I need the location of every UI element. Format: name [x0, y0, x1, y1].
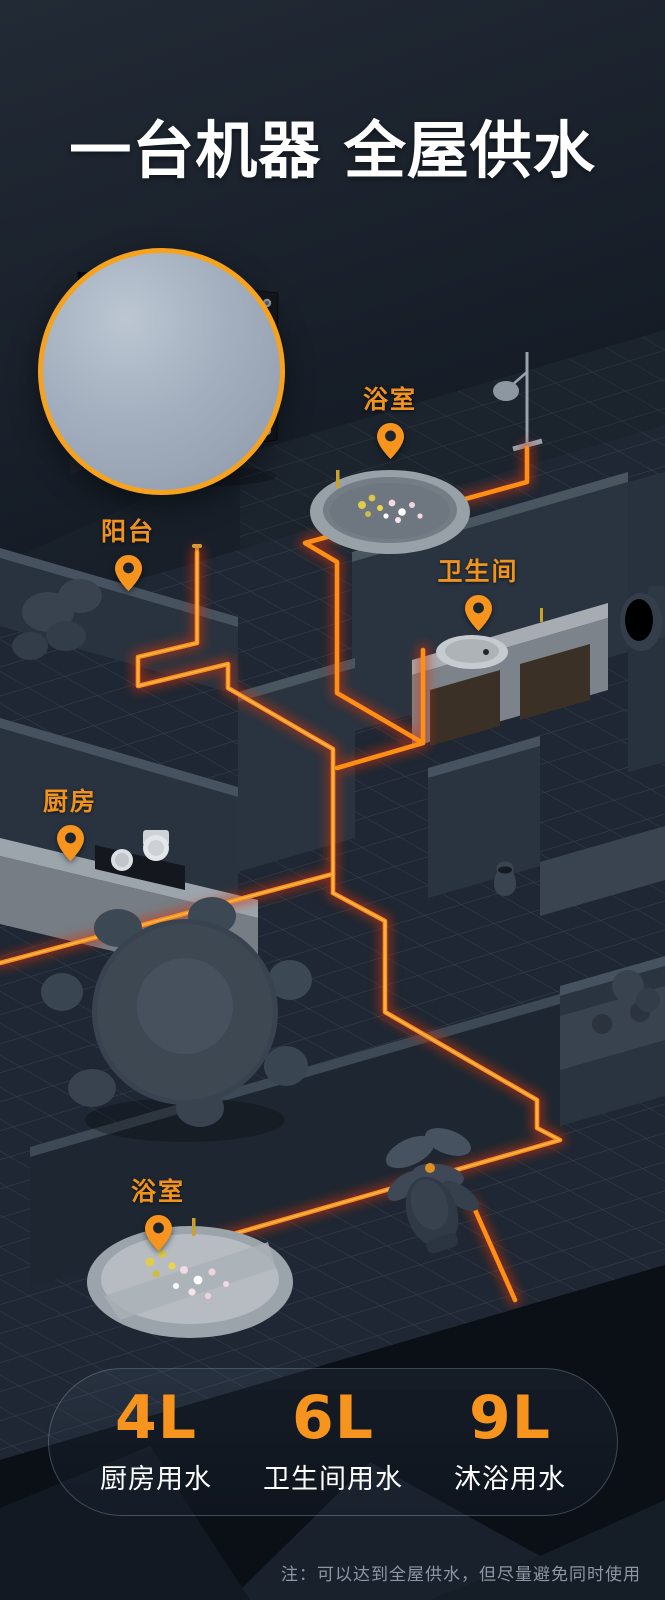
stat-label: 卫生间用水	[263, 1457, 403, 1496]
stat-kitchen: 4L 厨房用水	[100, 1389, 212, 1496]
footnote: 注：可以达到全屋供水，但尽量避免同时使用	[281, 1560, 641, 1585]
room-label-bathroom-top: 浴室	[310, 380, 470, 463]
stat-value: 6L	[263, 1389, 403, 1447]
room-name: 浴室	[310, 380, 470, 416]
stat-toilet: 6L 卫生间用水	[263, 1389, 403, 1496]
location-pin-icon	[57, 825, 84, 861]
room-name: 浴室	[78, 1172, 238, 1208]
stat-value: 4L	[100, 1389, 212, 1447]
room-name: 厨房	[0, 782, 150, 818]
room-label-toilet-room: 卫生间	[398, 552, 558, 635]
room-label-bathroom-bottom: 浴室	[78, 1172, 238, 1255]
device-inset-circle	[38, 248, 285, 495]
stat-shower: 9L 沐浴用水	[454, 1389, 566, 1496]
room-name: 阳台	[48, 512, 208, 548]
bathtub-top	[310, 470, 470, 554]
location-pin-icon	[115, 555, 142, 591]
location-pin-icon	[465, 595, 492, 631]
room-name: 卫生间	[398, 552, 558, 588]
stat-value: 9L	[454, 1389, 566, 1447]
room-label-kitchen: 厨房	[0, 782, 150, 865]
capacity-stats-panel: 4L 厨房用水 6L 卫生间用水 9L 沐浴用水	[48, 1368, 618, 1516]
location-pin-icon	[377, 423, 404, 459]
stat-label: 沐浴用水	[454, 1457, 566, 1496]
location-pin-icon	[145, 1215, 172, 1251]
room-label-balcony: 阳台	[48, 512, 208, 595]
stat-label: 厨房用水	[100, 1457, 212, 1496]
page-title: 一台机器 全屋供水	[0, 100, 665, 190]
